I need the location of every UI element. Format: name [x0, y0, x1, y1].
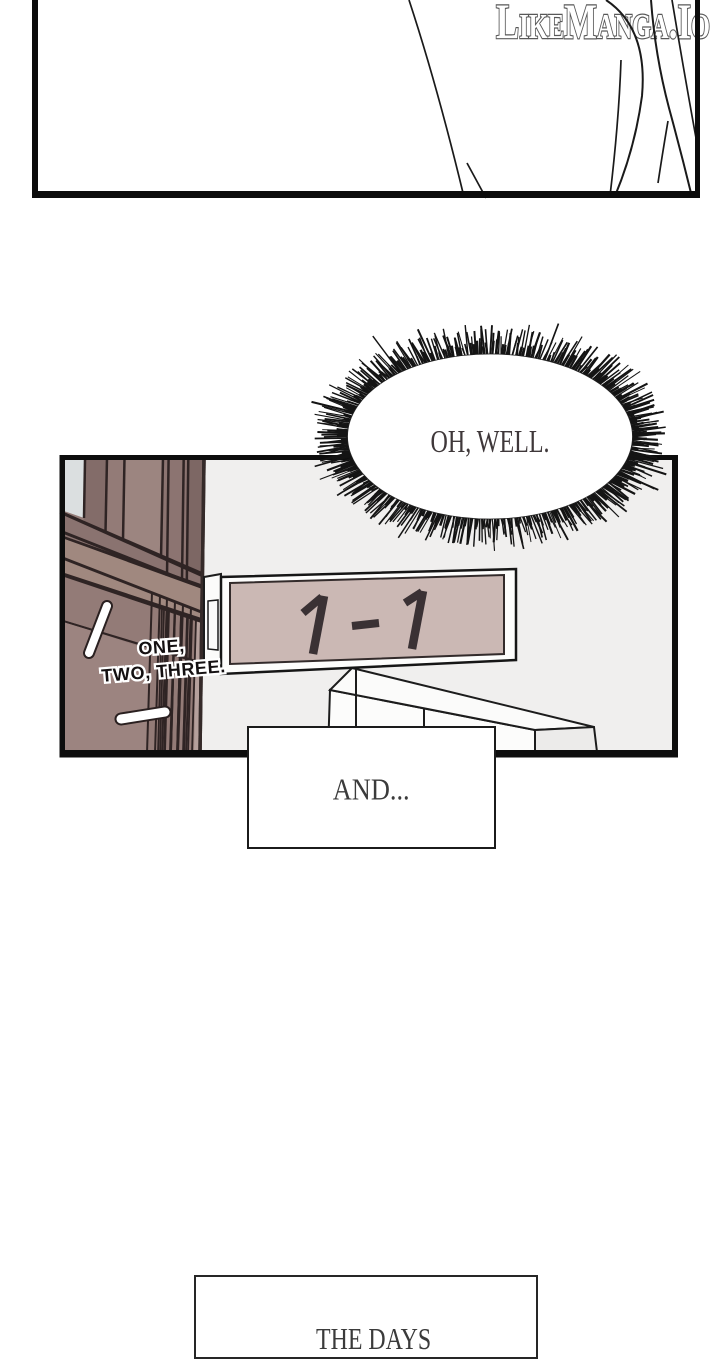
svg-text:LikeManga.Io: LikeManga.Io [496, 0, 710, 49]
svg-text:ONE,: ONE, [138, 635, 186, 658]
svg-text:OH, WELL.: OH, WELL. [431, 423, 550, 459]
